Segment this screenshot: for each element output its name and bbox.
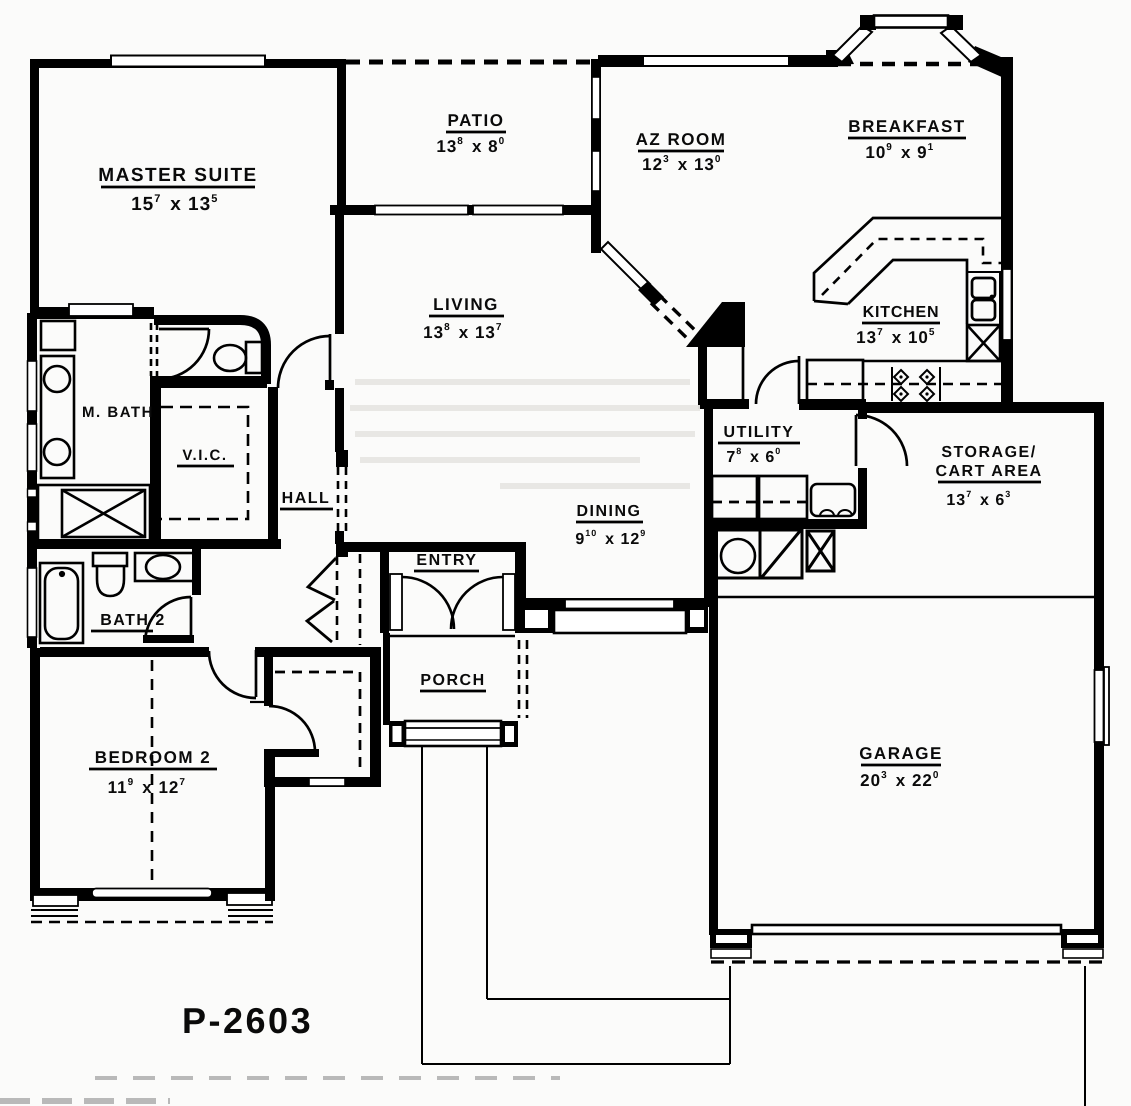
svg-text:AZ ROOM: AZ ROOM xyxy=(636,130,727,149)
svg-text:PORCH: PORCH xyxy=(420,672,485,689)
svg-text:UTILITY: UTILITY xyxy=(724,424,795,441)
svg-text:119 x 127: 119 x 127 xyxy=(108,777,189,797)
svg-text:137 x 105: 137 x 105 xyxy=(856,327,938,347)
svg-text:P-2603: P-2603 xyxy=(182,1000,313,1041)
svg-text:PATIO: PATIO xyxy=(448,111,505,130)
svg-text:157 x 135: 157 x 135 xyxy=(131,193,221,215)
svg-text:KITCHEN: KITCHEN xyxy=(863,304,940,321)
svg-text:HALL: HALL xyxy=(282,490,331,507)
svg-text:138 x 137: 138 x 137 xyxy=(423,322,505,342)
svg-text:138 x 80: 138 x 80 xyxy=(436,136,507,156)
svg-text:M. BATH: M. BATH xyxy=(82,404,154,421)
svg-text:BATH 2: BATH 2 xyxy=(100,612,166,629)
svg-text:MASTER SUITE: MASTER SUITE xyxy=(98,165,257,186)
svg-text:LIVING: LIVING xyxy=(433,295,499,314)
svg-text:109 x 91: 109 x 91 xyxy=(865,142,936,162)
svg-text:BEDROOM 2: BEDROOM 2 xyxy=(95,748,211,767)
svg-text:137 x 63: 137 x 63 xyxy=(946,489,1013,509)
svg-text:78 x 60: 78 x 60 xyxy=(726,446,783,466)
svg-text:ENTRY: ENTRY xyxy=(416,552,477,569)
svg-text:CART AREA: CART AREA xyxy=(935,463,1042,480)
svg-text:BREAKFAST: BREAKFAST xyxy=(848,117,965,136)
svg-text:203 x 220: 203 x 220 xyxy=(860,770,942,790)
svg-text:123 x 130: 123 x 130 xyxy=(642,154,724,174)
svg-text:DINING: DINING xyxy=(577,503,642,520)
svg-text:V.I.C.: V.I.C. xyxy=(182,447,227,464)
svg-text:STORAGE/: STORAGE/ xyxy=(941,444,1036,461)
svg-text:GARAGE: GARAGE xyxy=(859,744,943,763)
